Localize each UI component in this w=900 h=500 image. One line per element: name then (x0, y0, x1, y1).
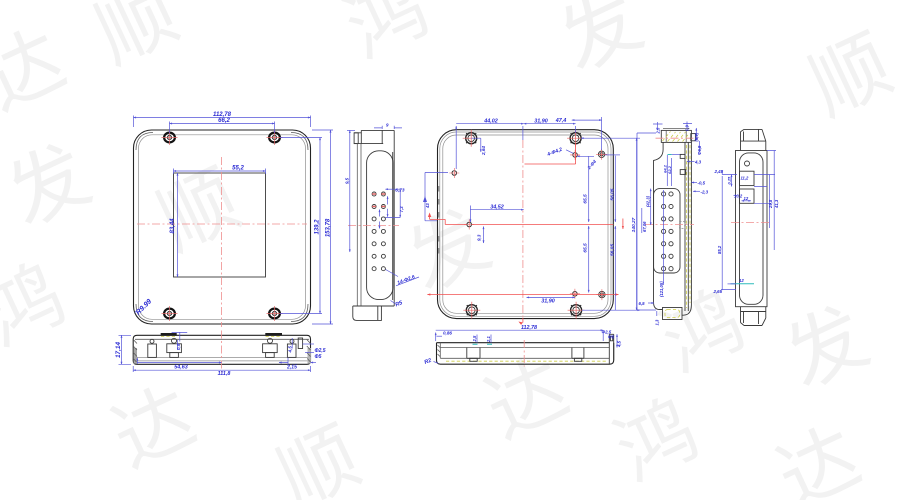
svg-text:0,9: 0,9 (176, 343, 181, 350)
svg-text:鸿: 鸿 (333, 0, 441, 74)
svg-text:65,5: 65,5 (583, 194, 589, 204)
svg-text:达: 达 (0, 14, 78, 127)
svg-text:31,90: 31,90 (534, 118, 548, 124)
svg-text:12: 12 (739, 278, 744, 283)
svg-text:56,05: 56,05 (610, 244, 616, 256)
svg-text:153,78: 153,78 (325, 218, 331, 237)
svg-text:112,78: 112,78 (213, 112, 232, 118)
svg-text:R9.99: R9.99 (135, 298, 153, 316)
svg-text:顺: 顺 (265, 411, 373, 500)
svg-text:34,52: 34,52 (490, 204, 504, 210)
svg-text:鸿: 鸿 (0, 249, 78, 362)
svg-text:9,5: 9,5 (344, 177, 349, 184)
svg-text:55,2: 55,2 (232, 166, 244, 172)
svg-text:发: 发 (773, 291, 881, 404)
svg-text:83,44: 83,44 (170, 218, 176, 234)
svg-text:41,3: 41,3 (774, 199, 779, 209)
svg-text:2,15: 2,15 (286, 364, 297, 370)
svg-text:4,3: 4,3 (694, 160, 702, 165)
svg-text:-2,3: -2,3 (701, 189, 709, 194)
svg-text:6,5: 6,5 (639, 301, 646, 306)
svg-text:2,65: 2,65 (713, 289, 723, 294)
svg-text:12: 12 (744, 196, 749, 201)
svg-text:Φ5: Φ5 (608, 334, 615, 339)
svg-text:140,27: 140,27 (631, 217, 637, 232)
svg-text:发: 发 (395, 194, 503, 307)
svg-text:2,5: 2,5 (472, 335, 477, 342)
svg-text:R5: R5 (395, 300, 405, 308)
svg-text:顺: 顺 (83, 0, 191, 80)
svg-text:发: 发 (0, 129, 103, 242)
svg-text:31,90: 31,90 (541, 299, 555, 305)
svg-text:鸿: 鸿 (649, 275, 757, 388)
svg-text:139,2: 139,2 (315, 219, 321, 235)
svg-text:4-Φ4,2: 4-Φ4,2 (546, 147, 564, 159)
svg-text:2,45: 2,45 (714, 169, 724, 174)
svg-text:达: 达 (473, 342, 581, 455)
svg-text:66,2: 66,2 (218, 118, 230, 124)
svg-text:4,5: 4,5 (287, 346, 292, 354)
svg-text:56,05: 56,05 (610, 188, 616, 200)
svg-text:85,2: 85,2 (717, 245, 722, 254)
svg-text:9,3: 9,3 (477, 234, 482, 241)
svg-text:R2: R2 (424, 357, 434, 365)
svg-text:鸿: 鸿 (603, 384, 711, 497)
svg-text:29,8: 29,8 (768, 199, 773, 209)
svg-text:65,5: 65,5 (583, 243, 589, 253)
svg-text:44,02: 44,02 (483, 118, 498, 124)
svg-text:Φ5: Φ5 (315, 354, 322, 360)
svg-text:9: 9 (386, 123, 389, 128)
svg-text:达: 达 (100, 371, 208, 484)
svg-text:2,64: 2,64 (481, 146, 486, 156)
svg-text:Φ6,8: Φ6,8 (697, 145, 702, 155)
svg-text:0,9: 0,9 (685, 125, 690, 131)
svg-text:-0,5: -0,5 (698, 181, 706, 186)
svg-text:0,86: 0,86 (443, 331, 452, 336)
svg-text:达: 达 (765, 411, 873, 500)
svg-text:62,2: 62,2 (667, 165, 672, 174)
svg-text:43: 43 (425, 203, 430, 209)
svg-text:11,2: 11,2 (741, 175, 750, 180)
svg-text:112,78: 112,78 (521, 325, 537, 331)
svg-text:0,25: 0,25 (726, 176, 731, 185)
svg-text:111,8: 111,8 (218, 371, 231, 377)
svg-text:4,5: 4,5 (617, 340, 622, 348)
svg-text:10,2: 10,2 (734, 194, 743, 199)
svg-text:2,1: 2,1 (486, 336, 491, 343)
svg-text:发: 发 (547, 0, 655, 87)
svg-text:7,3: 7,3 (399, 206, 404, 213)
svg-text:2,5: 2,5 (656, 127, 661, 134)
svg-text:47,4: 47,4 (555, 118, 567, 124)
svg-text:54,63: 54,63 (174, 364, 188, 370)
svg-text:2-Φ4: 2-Φ4 (586, 159, 598, 171)
svg-text:1,3: 1,3 (655, 319, 660, 325)
svg-text:(42,3): (42,3) (646, 195, 651, 207)
svg-text:17,14: 17,14 (115, 342, 122, 358)
svg-text:顺: 顺 (797, 19, 900, 132)
svg-text:(6,9): (6,9) (694, 132, 699, 141)
svg-text:67,06: 67,06 (642, 221, 647, 232)
